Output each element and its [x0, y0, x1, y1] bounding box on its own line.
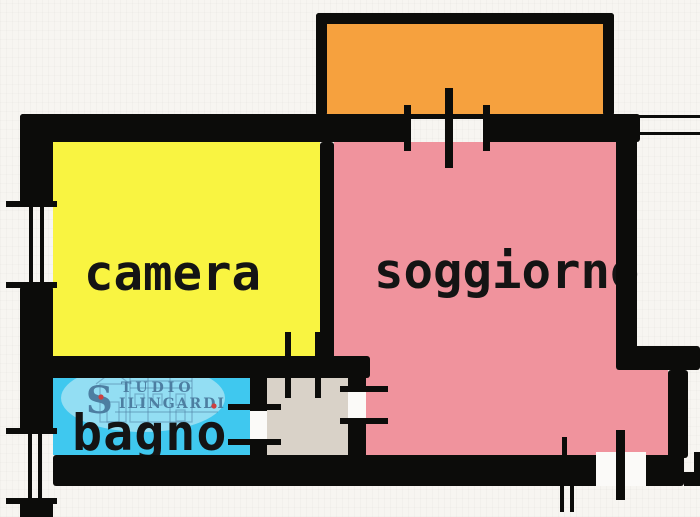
wall-left-bottom-stub — [20, 501, 53, 517]
window-bagno-pane-line-1 — [28, 433, 32, 501]
french-door-tick-left-icon — [404, 105, 411, 151]
door-camera-tick-right-icon — [315, 332, 321, 398]
adjacent-wall-line-upper — [637, 115, 700, 118]
door-entry-opening — [348, 392, 366, 422]
walls-layer — [0, 0, 700, 517]
adjacent-wall-line-lower — [637, 132, 700, 135]
window-camera-pane-line-1 — [29, 206, 33, 286]
window-camera-pane-line-2 — [40, 206, 44, 286]
wall-camera-soggiorno — [320, 142, 334, 364]
door-entry-tick-bottom-icon — [340, 418, 388, 424]
walls-group — [6, 13, 700, 517]
door-bagno-tick-top-icon — [228, 404, 281, 410]
wall-balcony-left — [316, 13, 327, 116]
wall-bottom-tick-below-2 — [570, 486, 574, 512]
window-camera-sill-top — [6, 201, 57, 207]
wall-top-left-segment — [20, 114, 410, 142]
floor-plan: S TUDIO ILINGARDI camera soggiorno bagno — [0, 0, 700, 517]
door-bagno-opening — [250, 411, 267, 442]
wall-bottom-right-edge — [694, 452, 700, 474]
door-bagno-tick-bottom-icon — [228, 439, 281, 445]
door-camera-tick-left-icon — [285, 332, 291, 398]
wall-balcony-right — [603, 13, 614, 116]
door-bottom-leaf-icon — [616, 430, 625, 500]
wall-balcony-top — [316, 13, 614, 24]
wall-right-upper — [616, 114, 637, 360]
wall-bottom-tick-above — [562, 437, 567, 457]
wall-right-step-horizontal — [616, 346, 700, 370]
wall-bottom-tick-below-1 — [560, 486, 564, 512]
door-entry-tick-top-icon — [340, 386, 388, 392]
wall-right-lower — [668, 370, 688, 458]
french-door-tick-right-icon — [483, 105, 490, 151]
window-bagno-pane-line-2 — [38, 433, 42, 501]
wall-bottom — [53, 455, 684, 486]
wall-bottom-right-corner — [684, 472, 700, 486]
wall-left-upper — [20, 114, 53, 206]
french-door-center-post-icon — [445, 88, 453, 168]
